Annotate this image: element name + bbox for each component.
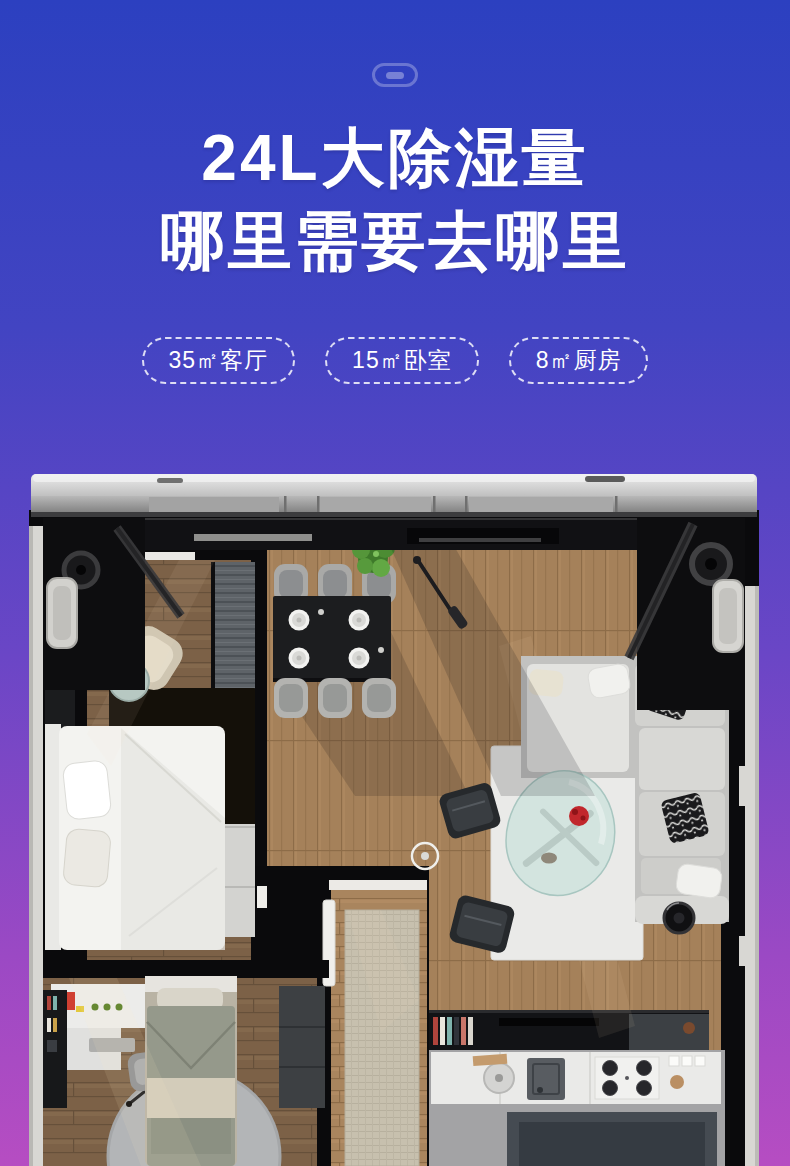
- kitchen-counter: [431, 1052, 721, 1104]
- book-shelf: [43, 990, 67, 1108]
- capsule-icon-inner: [386, 72, 404, 79]
- badge-kitchen: 8㎡厨房: [509, 337, 649, 384]
- kitchen: [429, 1010, 725, 1166]
- badge-bedroom: 15㎡卧室: [325, 337, 479, 384]
- dining-table: [273, 596, 391, 682]
- capsule-icon: [372, 63, 418, 87]
- gas-stove: [595, 1057, 659, 1099]
- top-beam: [31, 474, 757, 517]
- headline-line1: 24L大除湿量: [0, 117, 790, 200]
- ceiling-light: [194, 534, 312, 541]
- frame-corner-right: [629, 518, 745, 710]
- dark-dresser: [279, 986, 325, 1108]
- dining-chairs-bottom: [274, 678, 396, 718]
- double-bed: [45, 724, 225, 950]
- headline-line2: 哪里需要去哪里: [0, 200, 790, 283]
- hero-section: 24L大除湿量 哪里需要去哪里 35㎡客厅 15㎡卧室 8㎡厨房: [0, 0, 790, 384]
- promo-banner: 24L大除湿量 哪里需要去哪里 35㎡客厅 15㎡卧室 8㎡厨房: [0, 0, 790, 1166]
- floor-plan-render: [28, 466, 760, 1166]
- floor-speaker: [664, 903, 694, 933]
- badge-living-room: 35㎡客厅: [142, 337, 296, 384]
- floor-plan-image: [28, 466, 760, 1166]
- red-flower: [569, 806, 589, 826]
- room-badges: 35㎡客厅 15㎡卧室 8㎡厨房: [0, 337, 790, 384]
- media-console: [429, 1010, 709, 1050]
